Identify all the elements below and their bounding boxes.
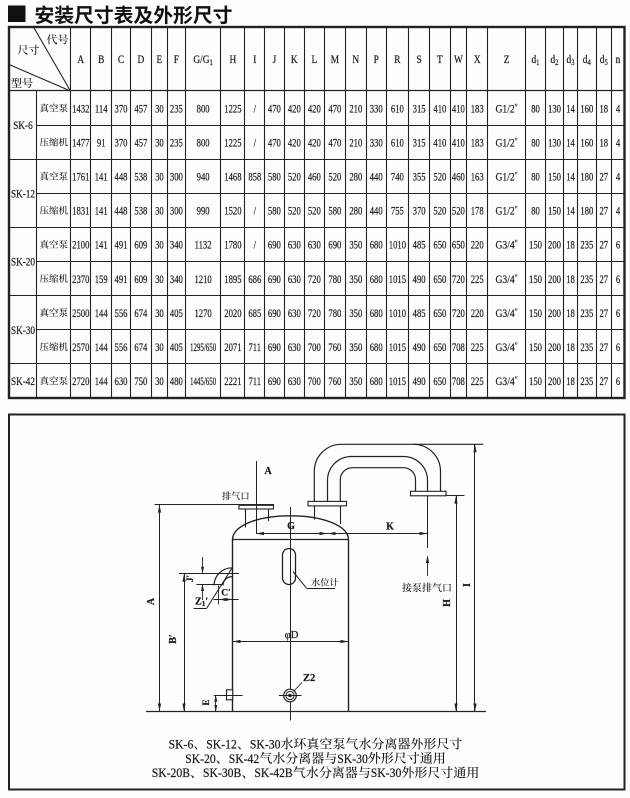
svg-text:1468: 1468	[224, 171, 241, 184]
svg-text:80: 80	[531, 103, 540, 116]
svg-text:330: 330	[370, 137, 383, 150]
svg-text:690: 690	[268, 342, 281, 355]
svg-text:650: 650	[433, 308, 446, 321]
svg-text:280: 280	[349, 205, 362, 218]
svg-text:183: 183	[471, 137, 484, 150]
svg-text:C: C	[118, 53, 124, 66]
svg-text:2100: 2100	[72, 240, 89, 253]
svg-text:1015: 1015	[389, 274, 406, 287]
svg-text:630: 630	[288, 240, 301, 253]
svg-text:650: 650	[452, 240, 465, 253]
svg-text:180: 180	[580, 205, 593, 218]
svg-text:159: 159	[95, 274, 108, 287]
svg-text:W: W	[454, 53, 464, 66]
svg-text:780: 780	[328, 308, 341, 321]
svg-text:440: 440	[370, 205, 383, 218]
svg-text:485: 485	[413, 308, 426, 321]
svg-text:220: 220	[471, 308, 484, 321]
svg-text:80: 80	[531, 205, 540, 218]
svg-text:178: 178	[471, 205, 484, 218]
svg-text:N: N	[352, 53, 359, 66]
svg-text:235: 235	[580, 308, 593, 321]
svg-text:520: 520	[288, 171, 301, 184]
svg-text:1520: 1520	[224, 205, 241, 218]
svg-text:18: 18	[599, 137, 608, 150]
svg-text:d1: d1	[532, 53, 540, 67]
svg-text:30: 30	[155, 103, 164, 116]
svg-text:141: 141	[95, 205, 108, 218]
svg-text:G3/4″: G3/4″	[496, 375, 518, 388]
svg-text:410: 410	[452, 103, 465, 116]
svg-text:520: 520	[328, 171, 341, 184]
svg-text:630: 630	[288, 342, 301, 355]
svg-text:686: 686	[248, 274, 261, 287]
svg-text:30: 30	[155, 205, 164, 218]
svg-text:91: 91	[97, 137, 106, 150]
svg-text:27: 27	[599, 376, 608, 389]
svg-text:1270: 1270	[194, 308, 211, 321]
svg-text:690: 690	[268, 308, 281, 321]
svg-text:340: 340	[170, 274, 183, 287]
svg-text:SK-30: SK-30	[371, 766, 402, 781]
svg-text:610: 610	[391, 137, 404, 150]
svg-text:200: 200	[548, 376, 561, 389]
svg-text:520: 520	[433, 205, 446, 218]
svg-text:650: 650	[433, 240, 446, 253]
svg-text:690: 690	[268, 376, 281, 389]
svg-text:609: 609	[134, 240, 147, 253]
svg-text:674: 674	[134, 308, 148, 321]
svg-text:370: 370	[413, 205, 426, 218]
svg-text:160: 160	[580, 137, 593, 150]
svg-text:K: K	[386, 522, 394, 533]
svg-text:405: 405	[170, 342, 183, 355]
svg-text:150: 150	[529, 308, 542, 321]
svg-text:700: 700	[308, 342, 321, 355]
svg-text:27: 27	[599, 342, 608, 355]
svg-text:G3/4″: G3/4″	[496, 273, 518, 286]
svg-text:150: 150	[529, 240, 542, 253]
svg-text:H: H	[230, 53, 237, 66]
svg-text:1780: 1780	[224, 240, 241, 253]
svg-text:163: 163	[471, 171, 484, 184]
svg-text:H: H	[442, 599, 453, 607]
svg-text:G1/2″: G1/2″	[496, 102, 518, 115]
svg-text:/: /	[254, 137, 256, 150]
svg-text:200: 200	[548, 308, 561, 321]
svg-text:235: 235	[170, 103, 183, 116]
svg-text:538: 538	[134, 171, 147, 184]
svg-text:457: 457	[134, 103, 147, 116]
svg-text:520: 520	[288, 205, 301, 218]
svg-text:A: A	[77, 53, 84, 66]
svg-text:1132: 1132	[195, 240, 212, 253]
svg-text:420: 420	[288, 103, 301, 116]
svg-text:210: 210	[349, 137, 362, 150]
svg-text:Z: Z	[504, 53, 510, 66]
svg-text:200: 200	[548, 274, 561, 287]
svg-text:674: 674	[134, 342, 148, 355]
svg-text:80: 80	[531, 137, 540, 150]
svg-text:S: S	[416, 53, 421, 66]
svg-text:30: 30	[155, 308, 164, 321]
svg-text:490: 490	[413, 274, 426, 287]
svg-text:G/G1: G/G1	[193, 53, 213, 67]
svg-text:A: A	[146, 597, 157, 605]
svg-text:609: 609	[134, 274, 147, 287]
svg-text:SK-30B: SK-30B	[203, 766, 241, 781]
svg-text:Z1′: Z1′	[195, 597, 208, 609]
svg-text:350: 350	[349, 342, 362, 355]
svg-text:800: 800	[197, 137, 210, 150]
svg-text:457: 457	[134, 137, 147, 150]
svg-text:680: 680	[370, 342, 383, 355]
svg-text:150: 150	[529, 274, 542, 287]
svg-text:858: 858	[248, 171, 261, 184]
svg-text:R: R	[394, 53, 401, 66]
svg-text:J: J	[273, 53, 277, 66]
svg-text:690: 690	[268, 274, 281, 287]
svg-text:d3: d3	[567, 53, 575, 67]
svg-text:D: D	[138, 53, 145, 66]
svg-text:350: 350	[349, 308, 362, 321]
svg-text:1432: 1432	[72, 103, 89, 116]
svg-text:144: 144	[95, 376, 109, 389]
svg-text:27: 27	[599, 171, 608, 184]
svg-text:355: 355	[413, 171, 426, 184]
svg-text:630: 630	[308, 240, 321, 253]
svg-text:4: 4	[616, 103, 621, 116]
svg-text:SK-6: SK-6	[169, 737, 194, 752]
svg-text:6: 6	[616, 376, 620, 389]
svg-text:SK-42B: SK-42B	[254, 766, 292, 781]
svg-text:30: 30	[155, 274, 164, 287]
svg-text:538: 538	[134, 205, 147, 218]
svg-text:200: 200	[548, 342, 561, 355]
svg-text:/: /	[254, 240, 256, 253]
svg-text:556: 556	[115, 308, 128, 321]
svg-text:1761: 1761	[72, 171, 89, 184]
svg-text:420: 420	[308, 137, 321, 150]
svg-text:30: 30	[155, 342, 164, 355]
svg-text:755: 755	[391, 205, 404, 218]
svg-text:27: 27	[599, 205, 608, 218]
svg-text:φD: φD	[285, 630, 299, 641]
svg-text:SK-12: SK-12	[206, 737, 237, 752]
svg-text:A: A	[265, 466, 273, 477]
svg-text:200: 200	[548, 240, 561, 253]
svg-text:235: 235	[580, 376, 593, 389]
svg-text:1010: 1010	[389, 240, 406, 253]
svg-text:SK-42: SK-42	[11, 376, 35, 388]
svg-text:130: 130	[548, 103, 561, 116]
svg-text:1831: 1831	[72, 205, 89, 218]
svg-text:740: 740	[391, 171, 404, 184]
svg-text:610: 610	[391, 103, 404, 116]
svg-text:18: 18	[566, 376, 575, 389]
svg-text:720: 720	[452, 308, 465, 321]
svg-text:144: 144	[95, 342, 109, 355]
svg-text:690: 690	[268, 240, 281, 253]
svg-text:350: 350	[349, 240, 362, 253]
svg-text:720: 720	[308, 308, 321, 321]
svg-text:370: 370	[115, 137, 128, 150]
svg-text:G3/4″: G3/4″	[496, 307, 518, 320]
svg-text:210: 210	[349, 103, 362, 116]
svg-text:711: 711	[248, 376, 261, 389]
svg-text:F: F	[174, 53, 179, 66]
svg-text:460: 460	[308, 171, 321, 184]
svg-text:370: 370	[115, 103, 128, 116]
svg-text:410: 410	[433, 103, 446, 116]
svg-text:235: 235	[170, 137, 183, 150]
svg-text:SK-20B: SK-20B	[152, 766, 190, 781]
svg-text:6: 6	[616, 274, 620, 287]
svg-text:144: 144	[95, 308, 109, 321]
svg-text:4: 4	[616, 137, 621, 150]
svg-text:1477: 1477	[72, 137, 89, 150]
svg-text:990: 990	[197, 205, 210, 218]
svg-text:141: 141	[95, 171, 108, 184]
svg-text:30: 30	[155, 171, 164, 184]
svg-text:520: 520	[308, 205, 321, 218]
svg-text:4: 4	[616, 171, 621, 184]
svg-text:SK-30: SK-30	[250, 737, 281, 752]
svg-text:Z2: Z2	[303, 673, 315, 684]
svg-text:225: 225	[471, 342, 484, 355]
svg-text:1895: 1895	[224, 274, 241, 287]
svg-text:27: 27	[599, 274, 608, 287]
svg-text:M: M	[331, 53, 340, 66]
svg-text:I: I	[462, 583, 473, 587]
svg-text:6: 6	[616, 240, 620, 253]
svg-text:B′: B′	[168, 634, 179, 644]
svg-text:750: 750	[134, 376, 147, 389]
svg-text:490: 490	[413, 342, 426, 355]
svg-text:330: 330	[370, 103, 383, 116]
svg-text:520: 520	[452, 205, 465, 218]
svg-text:470: 470	[328, 103, 341, 116]
svg-text:B: B	[98, 53, 104, 66]
svg-text:1445/650: 1445/650	[190, 375, 216, 388]
svg-text:220: 220	[471, 240, 484, 253]
svg-text:SK-20: SK-20	[185, 751, 216, 766]
svg-text:711: 711	[248, 342, 261, 355]
svg-text:556: 556	[115, 342, 128, 355]
svg-text:SK-20: SK-20	[11, 257, 35, 269]
svg-text:114: 114	[95, 103, 108, 116]
svg-text:14: 14	[566, 103, 575, 116]
svg-text:420: 420	[288, 137, 301, 150]
svg-text:14: 14	[566, 137, 575, 150]
svg-text:1015: 1015	[389, 376, 406, 389]
svg-text:470: 470	[268, 137, 281, 150]
svg-text:L: L	[311, 53, 317, 66]
svg-text:680: 680	[370, 274, 383, 287]
svg-text:630: 630	[288, 274, 301, 287]
svg-text:708: 708	[452, 376, 465, 389]
svg-text:27: 27	[599, 308, 608, 321]
svg-text:700: 700	[308, 376, 321, 389]
svg-text:630: 630	[288, 376, 301, 389]
svg-text:d2: d2	[551, 53, 559, 67]
svg-text:720: 720	[452, 274, 465, 287]
svg-text:30: 30	[155, 240, 164, 253]
svg-text:/: /	[254, 103, 256, 116]
svg-text:225: 225	[471, 274, 484, 287]
svg-text:30: 30	[155, 376, 164, 389]
svg-text:6: 6	[616, 308, 620, 321]
svg-text:150: 150	[548, 171, 561, 184]
svg-text:2020: 2020	[224, 308, 241, 321]
svg-text:491: 491	[115, 274, 128, 287]
svg-text:141: 141	[95, 240, 108, 253]
svg-text:150: 150	[548, 205, 561, 218]
svg-text:183: 183	[471, 103, 484, 116]
svg-text:340: 340	[170, 240, 183, 253]
svg-text:420: 420	[308, 103, 321, 116]
svg-text:2570: 2570	[72, 342, 89, 355]
svg-text:150: 150	[529, 376, 542, 389]
svg-text:80: 80	[531, 171, 540, 184]
svg-text:410: 410	[433, 137, 446, 150]
svg-text:580: 580	[328, 205, 341, 218]
svg-text:315: 315	[413, 103, 426, 116]
svg-text:630: 630	[288, 308, 301, 321]
svg-text:800: 800	[197, 103, 210, 116]
svg-text:18: 18	[566, 342, 575, 355]
svg-text:225: 225	[471, 376, 484, 389]
svg-text:235: 235	[580, 342, 593, 355]
svg-text:690: 690	[328, 240, 341, 253]
svg-text:650: 650	[433, 342, 446, 355]
svg-text:470: 470	[328, 137, 341, 150]
svg-text:235: 235	[580, 274, 593, 287]
svg-text:E: E	[157, 53, 163, 66]
svg-text:18: 18	[566, 240, 575, 253]
svg-text:30: 30	[155, 137, 164, 150]
svg-text:485: 485	[413, 240, 426, 253]
svg-text:2720: 2720	[72, 376, 89, 389]
svg-text:14: 14	[566, 205, 575, 218]
svg-text:18: 18	[599, 103, 608, 116]
svg-text:440: 440	[370, 171, 383, 184]
svg-text:SK-42: SK-42	[229, 751, 260, 766]
svg-text:G3/4″: G3/4″	[496, 341, 518, 354]
svg-text:X: X	[474, 53, 481, 66]
svg-text:491: 491	[115, 240, 128, 253]
svg-text:470: 470	[268, 103, 281, 116]
svg-text:448: 448	[115, 171, 128, 184]
svg-text:E: E	[201, 699, 211, 705]
svg-text:4: 4	[616, 205, 621, 218]
svg-text:680: 680	[370, 308, 383, 321]
svg-text:1015: 1015	[389, 342, 406, 355]
svg-text:410: 410	[452, 137, 465, 150]
svg-text:580: 580	[268, 171, 281, 184]
svg-text:J′: J′	[186, 574, 196, 582]
svg-text:G1/2″: G1/2″	[496, 171, 518, 184]
svg-text:460: 460	[452, 171, 465, 184]
svg-text:K: K	[291, 53, 298, 66]
svg-text:G3/4″: G3/4″	[496, 239, 518, 252]
svg-text:130: 130	[548, 137, 561, 150]
svg-text:6: 6	[616, 342, 620, 355]
svg-text:/: /	[254, 205, 256, 218]
svg-text:C′: C′	[221, 589, 231, 599]
svg-text:P: P	[374, 53, 379, 66]
svg-text:405: 405	[170, 308, 183, 321]
svg-text:2370: 2370	[72, 274, 89, 287]
svg-text:SK-12: SK-12	[11, 188, 35, 200]
svg-text:480: 480	[170, 376, 183, 389]
svg-text:G1/2″: G1/2″	[496, 205, 518, 218]
svg-text:2500: 2500	[72, 308, 89, 321]
svg-text:d5: d5	[600, 53, 608, 67]
svg-text:1010: 1010	[389, 308, 406, 321]
svg-text:n: n	[616, 53, 621, 66]
svg-text:350: 350	[349, 376, 362, 389]
svg-text:G: G	[287, 521, 295, 532]
svg-text:520: 520	[433, 171, 446, 184]
svg-text:2221: 2221	[224, 376, 241, 389]
svg-text:14: 14	[566, 171, 575, 184]
svg-text:SK-6: SK-6	[13, 120, 32, 132]
svg-text:T: T	[437, 53, 443, 66]
svg-text:SK-30: SK-30	[11, 325, 35, 337]
svg-text:680: 680	[370, 376, 383, 389]
svg-text:940: 940	[197, 171, 210, 184]
svg-text:G1/2″: G1/2″	[496, 136, 518, 149]
svg-text:650: 650	[433, 376, 446, 389]
svg-text:1210: 1210	[194, 274, 211, 287]
svg-text:27: 27	[599, 240, 608, 253]
svg-text:708: 708	[452, 342, 465, 355]
svg-text:720: 720	[308, 274, 321, 287]
svg-text:760: 760	[328, 376, 341, 389]
svg-text:1295/650: 1295/650	[190, 341, 216, 354]
svg-text:680: 680	[370, 240, 383, 253]
svg-text:2071: 2071	[224, 342, 241, 355]
svg-text:SK-30: SK-30	[337, 751, 368, 766]
svg-text:I: I	[253, 53, 256, 66]
svg-text:300: 300	[170, 205, 183, 218]
svg-text:448: 448	[115, 205, 128, 218]
svg-text:d4: d4	[583, 53, 591, 67]
svg-text:630: 630	[115, 376, 128, 389]
svg-text:780: 780	[328, 274, 341, 287]
svg-text:350: 350	[349, 274, 362, 287]
svg-text:235: 235	[580, 240, 593, 253]
svg-text:490: 490	[413, 376, 426, 389]
svg-text:18: 18	[566, 308, 575, 321]
svg-text:18: 18	[566, 274, 575, 287]
svg-text:1225: 1225	[224, 137, 241, 150]
svg-text:760: 760	[328, 342, 341, 355]
svg-text:280: 280	[349, 171, 362, 184]
svg-text:150: 150	[529, 342, 542, 355]
svg-text:1225: 1225	[224, 103, 241, 116]
svg-text:580: 580	[268, 205, 281, 218]
svg-text:180: 180	[580, 171, 593, 184]
svg-text:650: 650	[433, 274, 446, 287]
svg-text:300: 300	[170, 171, 183, 184]
svg-text:315: 315	[413, 137, 426, 150]
svg-text:160: 160	[580, 103, 593, 116]
svg-text:685: 685	[248, 308, 261, 321]
